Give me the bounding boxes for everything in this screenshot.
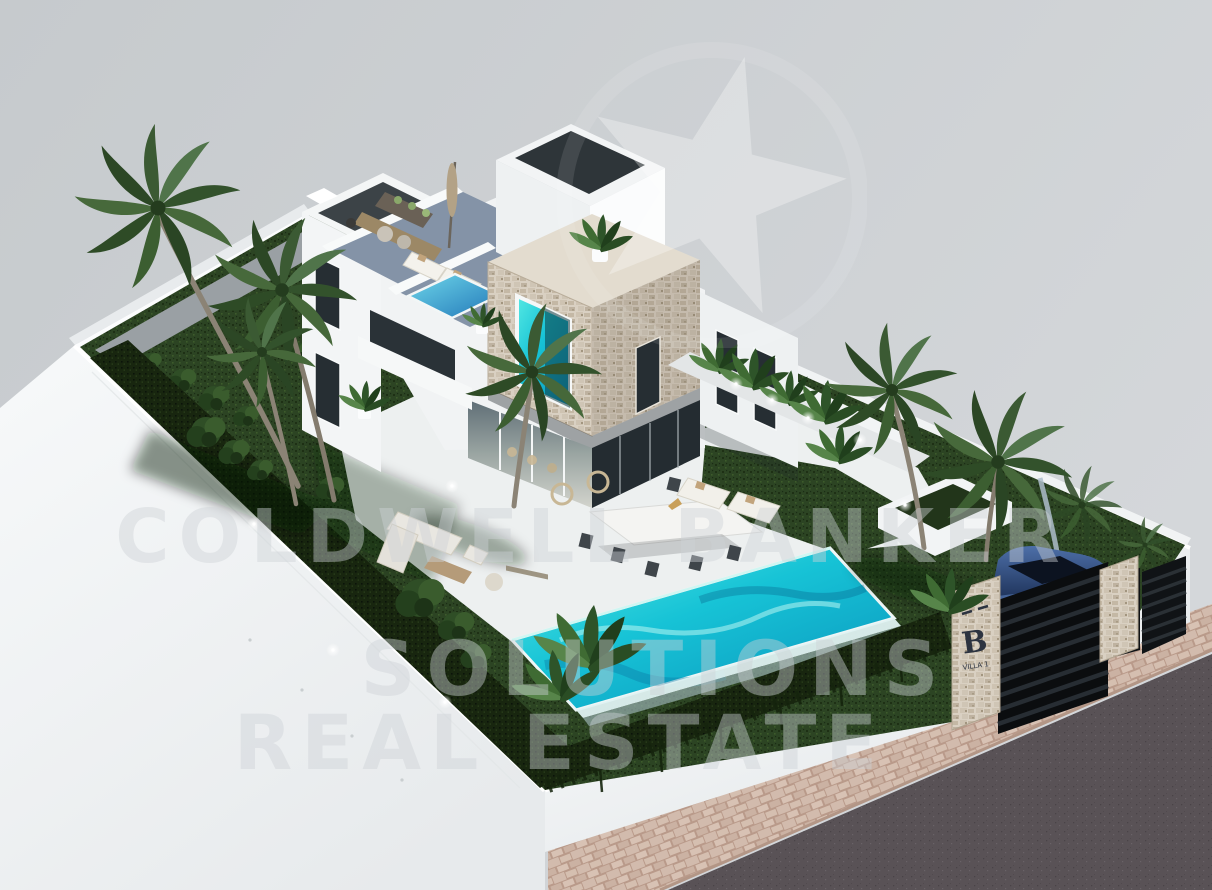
pouf (397, 235, 411, 249)
cube-side-window (636, 337, 660, 414)
closed-umbrella (447, 163, 458, 217)
pouf (377, 226, 393, 242)
window-lower (315, 352, 340, 428)
stone-pillar-right (1100, 556, 1138, 662)
property-render: B VILLA 1 (0, 0, 1212, 890)
lantern (346, 218, 356, 228)
scene-svg: B VILLA 1 (0, 0, 1212, 890)
sign-logo-letter: B (960, 623, 990, 661)
pouf (485, 573, 503, 591)
